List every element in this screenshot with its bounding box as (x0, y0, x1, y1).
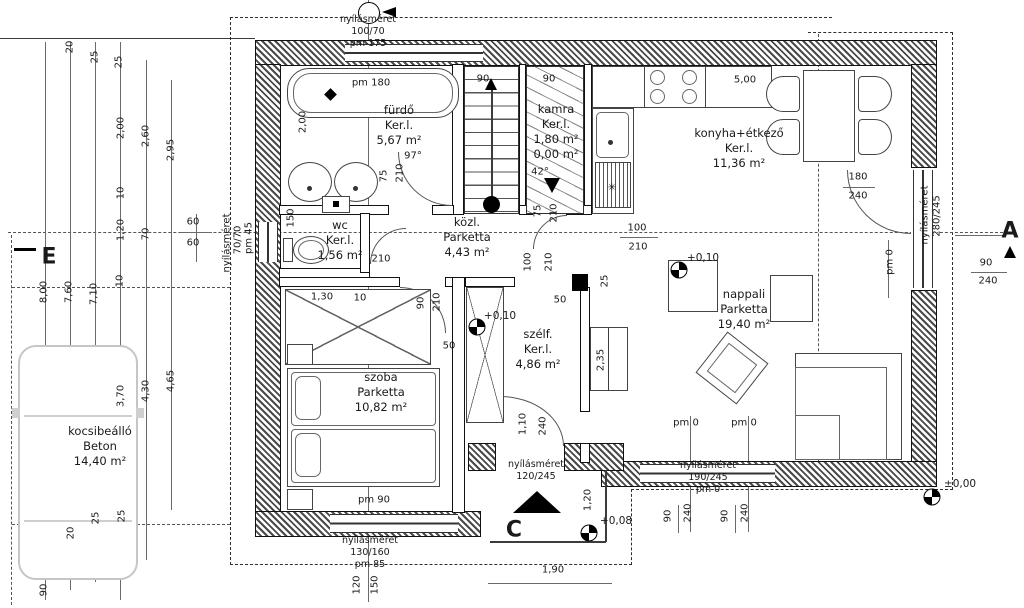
dimension-label-rotated: 210 (432, 292, 443, 311)
opening-note-line: nyílásméret (680, 460, 736, 472)
level-value: ±0,00 (944, 478, 976, 490)
dimension-label: 50 (554, 295, 567, 306)
dimension-label-rotated: 240 (740, 503, 751, 522)
level-value: +0,10 (484, 310, 516, 322)
dimension-label-rotated: 75 (533, 205, 544, 218)
section-marker-e: E (41, 245, 56, 270)
dimension-label-rotated: 70 (141, 228, 152, 241)
opening-note-line: 100/70 (340, 26, 396, 38)
room-label-kocsibell: kocsibeállóBeton14,40 m² (68, 424, 132, 469)
room-label-konyhatkez: konyha+étkezőKer.l.11,36 m² (694, 126, 783, 171)
dimension-label-rotated: 150 (286, 208, 297, 227)
dimension-label-rotated: 10 (115, 275, 126, 288)
opening-note-line: pm 175 (340, 38, 396, 50)
dimension-label: 1,30 (311, 292, 333, 303)
dimension-label: pm 0 (731, 418, 757, 429)
dimension-label: 50 (443, 341, 456, 352)
dimension-label: 10 (354, 293, 367, 304)
opening-note-line: 190/245 (680, 472, 736, 484)
room-area: 4,43 m² (443, 245, 491, 260)
dimension-label: 60 (187, 217, 200, 228)
room-label-kamra: kamraKer.l.1,80 m²0,00 m² (533, 102, 578, 162)
room-floor: Ker.l. (533, 117, 578, 132)
room-name: konyha+étkező (694, 126, 783, 141)
dimension-label-rotated: 90 (663, 510, 674, 523)
dimension-label-rotated: 75 (379, 170, 390, 183)
room-area: 1,80 m² (533, 132, 578, 147)
label-layer: fürdőKer.l.5,67 m²wcKer.l.1,56 m²kamraKe… (0, 0, 1024, 608)
room-floor: Parketta (718, 302, 770, 317)
opening-size-note: nyílásméret100/70pm 175 (340, 14, 396, 50)
dimension-label: 90 (543, 74, 556, 85)
room-name: közl. (443, 215, 491, 230)
dimension-label-rotated: 4,30 (141, 380, 152, 402)
dimension-label: 210 (628, 242, 647, 253)
dimension-label-rotated: 25 (600, 275, 611, 288)
room-name: kamra (533, 102, 578, 117)
room-floor: Parketta (355, 385, 407, 400)
dimension-label-rotated: 1,20 (116, 219, 127, 241)
dimension-label: 210 (371, 254, 390, 265)
dimension-label-rotated: 120 (352, 575, 363, 594)
dimension-label-rotated: 8,00 (39, 281, 50, 303)
dimension-label-rotated: 4,65 (166, 370, 177, 392)
dimension-label: 97° (404, 151, 422, 162)
dimension-label-rotated: pm 45 (244, 222, 255, 254)
dimension-label-rotated: pm 0 (885, 249, 896, 275)
dimension-label-rotated: 90 (39, 584, 50, 597)
dimension-label: pm 180 (352, 78, 390, 89)
opening-note-line: 120/245 (508, 471, 564, 483)
dimension-label-rotated: 100 (523, 252, 534, 271)
room-floor: Beton (68, 439, 132, 454)
dimension-label-rotated: 2,35 (596, 349, 607, 371)
dimension-label-rotated: 1,10 (518, 413, 529, 435)
dimension-label-rotated: 210 (395, 163, 406, 182)
dimension-label: 240 (848, 191, 867, 202)
dimension-label-rotated: 90 (416, 297, 427, 310)
opening-note-line: nyílásméret (340, 14, 396, 26)
room-floor: Ker.l. (376, 118, 421, 133)
dimension-label: ✳ (608, 183, 616, 194)
room-area: 5,67 m² (376, 133, 421, 148)
level-marker-icon (671, 262, 688, 279)
opening-size-note: nyílásméret130/160pm 85 (342, 535, 398, 571)
dimension-label-rotated: 25 (114, 56, 125, 69)
room-floor: Ker.l. (694, 141, 783, 156)
dimension-label-rotated: 2,95 (166, 139, 177, 161)
opening-note-line: nyílásméret (508, 459, 564, 471)
section-marker-a: A (1001, 219, 1018, 244)
level-value: +0,10 (687, 252, 719, 264)
room-extra: 0,00 m² (533, 147, 578, 162)
dimension-label: 60 (187, 238, 200, 249)
dimension-label-rotated: 10 (116, 187, 127, 200)
room-name: fürdő (376, 103, 421, 118)
room-name: nappali (718, 287, 770, 302)
room-area: 10,82 m² (355, 400, 407, 415)
dimension-label-rotated: 25 (117, 510, 128, 523)
opening-note-line: pm 85 (342, 559, 398, 571)
room-label-nappali: nappaliParketta19,40 m² (718, 287, 770, 332)
room-area: 11,36 m² (694, 156, 783, 171)
opening-note-line: pm 0 (680, 484, 736, 496)
level-marker-icon (581, 525, 598, 542)
room-name: szoba (355, 370, 407, 385)
room-floor: Parketta (443, 230, 491, 245)
dimension-label-rotated: 20 (65, 41, 76, 54)
dimension-label-rotated: 70/70 (233, 226, 244, 255)
level-marker-icon (924, 489, 941, 506)
room-floor: Ker.l. (317, 233, 362, 248)
dimension-label: 1,90 (542, 565, 564, 576)
room-floor: Ker.l. (515, 342, 560, 357)
dimension-label-rotated: 90 (720, 510, 731, 523)
dimension-label: 90 (980, 258, 993, 269)
dimension-label-rotated: 280/245 (932, 195, 943, 237)
room-label-frd: fürdőKer.l.5,67 m² (376, 103, 421, 148)
room-area: 1,56 m² (317, 248, 362, 263)
room-name: szélf. (515, 327, 560, 342)
room-label-szoba: szobaParketta10,82 m² (355, 370, 407, 415)
room-label-szlf: szélf.Ker.l.4,86 m² (515, 327, 560, 372)
dimension-label: 90 (477, 74, 490, 85)
dimension-label-rotated: 25 (91, 512, 102, 525)
dimension-label-rotated: nyílásméret (920, 185, 931, 244)
dimension-label-rotated: 2,00 (116, 117, 127, 139)
opening-note-line: nyílásméret (342, 535, 398, 547)
floor-plan-canvas: fürdőKer.l.5,67 m²wcKer.l.1,56 m²kamraKe… (0, 0, 1024, 608)
dimension-label-rotated: 7,60 (64, 281, 75, 303)
dimension-label-rotated: 3,70 (116, 385, 127, 407)
opening-size-note: nyílásméret120/245 (508, 459, 564, 483)
dimension-label: 42° (531, 167, 549, 178)
dimension-label-rotated: 210 (549, 203, 560, 222)
dimension-label: 240 (978, 276, 997, 287)
dimension-label: 100 (627, 223, 646, 234)
opening-size-note: nyílásméret190/245pm 0 (680, 460, 736, 496)
room-label-wc: wcKer.l.1,56 m² (317, 218, 362, 263)
room-label-kzl: közl.Parketta4,43 m² (443, 215, 491, 260)
room-area: 14,40 m² (68, 454, 132, 469)
dimension-label: 180 (848, 172, 867, 183)
dimension-label: 5,00 (734, 75, 756, 86)
dimension-label: pm 90 (358, 495, 390, 506)
dimension-label-rotated: 150 (370, 575, 381, 594)
dimension-label-rotated: 2,60 (141, 125, 152, 147)
dimension-label-rotated: 210 (544, 252, 555, 271)
opening-note-line: 130/160 (342, 547, 398, 559)
level-value: +0,08 (600, 515, 632, 527)
room-area: 19,40 m² (718, 317, 770, 332)
dimension-label-rotated: 240 (538, 416, 549, 435)
dimension-label-rotated: 2,00 (298, 111, 309, 133)
dimension-label-rotated: 1,20 (583, 489, 594, 511)
section-marker-c: C (506, 518, 522, 543)
room-area: 4,86 m² (515, 357, 560, 372)
dimension-label-rotated: 20 (66, 527, 77, 540)
dimension-label-rotated: nyílásméret (222, 213, 233, 272)
dimension-label-rotated: 240 (683, 503, 694, 522)
dimension-label: pm 0 (673, 418, 699, 429)
dimension-label-rotated: 7,10 (89, 283, 100, 305)
room-name: kocsibeálló (68, 424, 132, 439)
room-name: wc (317, 218, 362, 233)
dimension-label-rotated: 25 (90, 51, 101, 64)
